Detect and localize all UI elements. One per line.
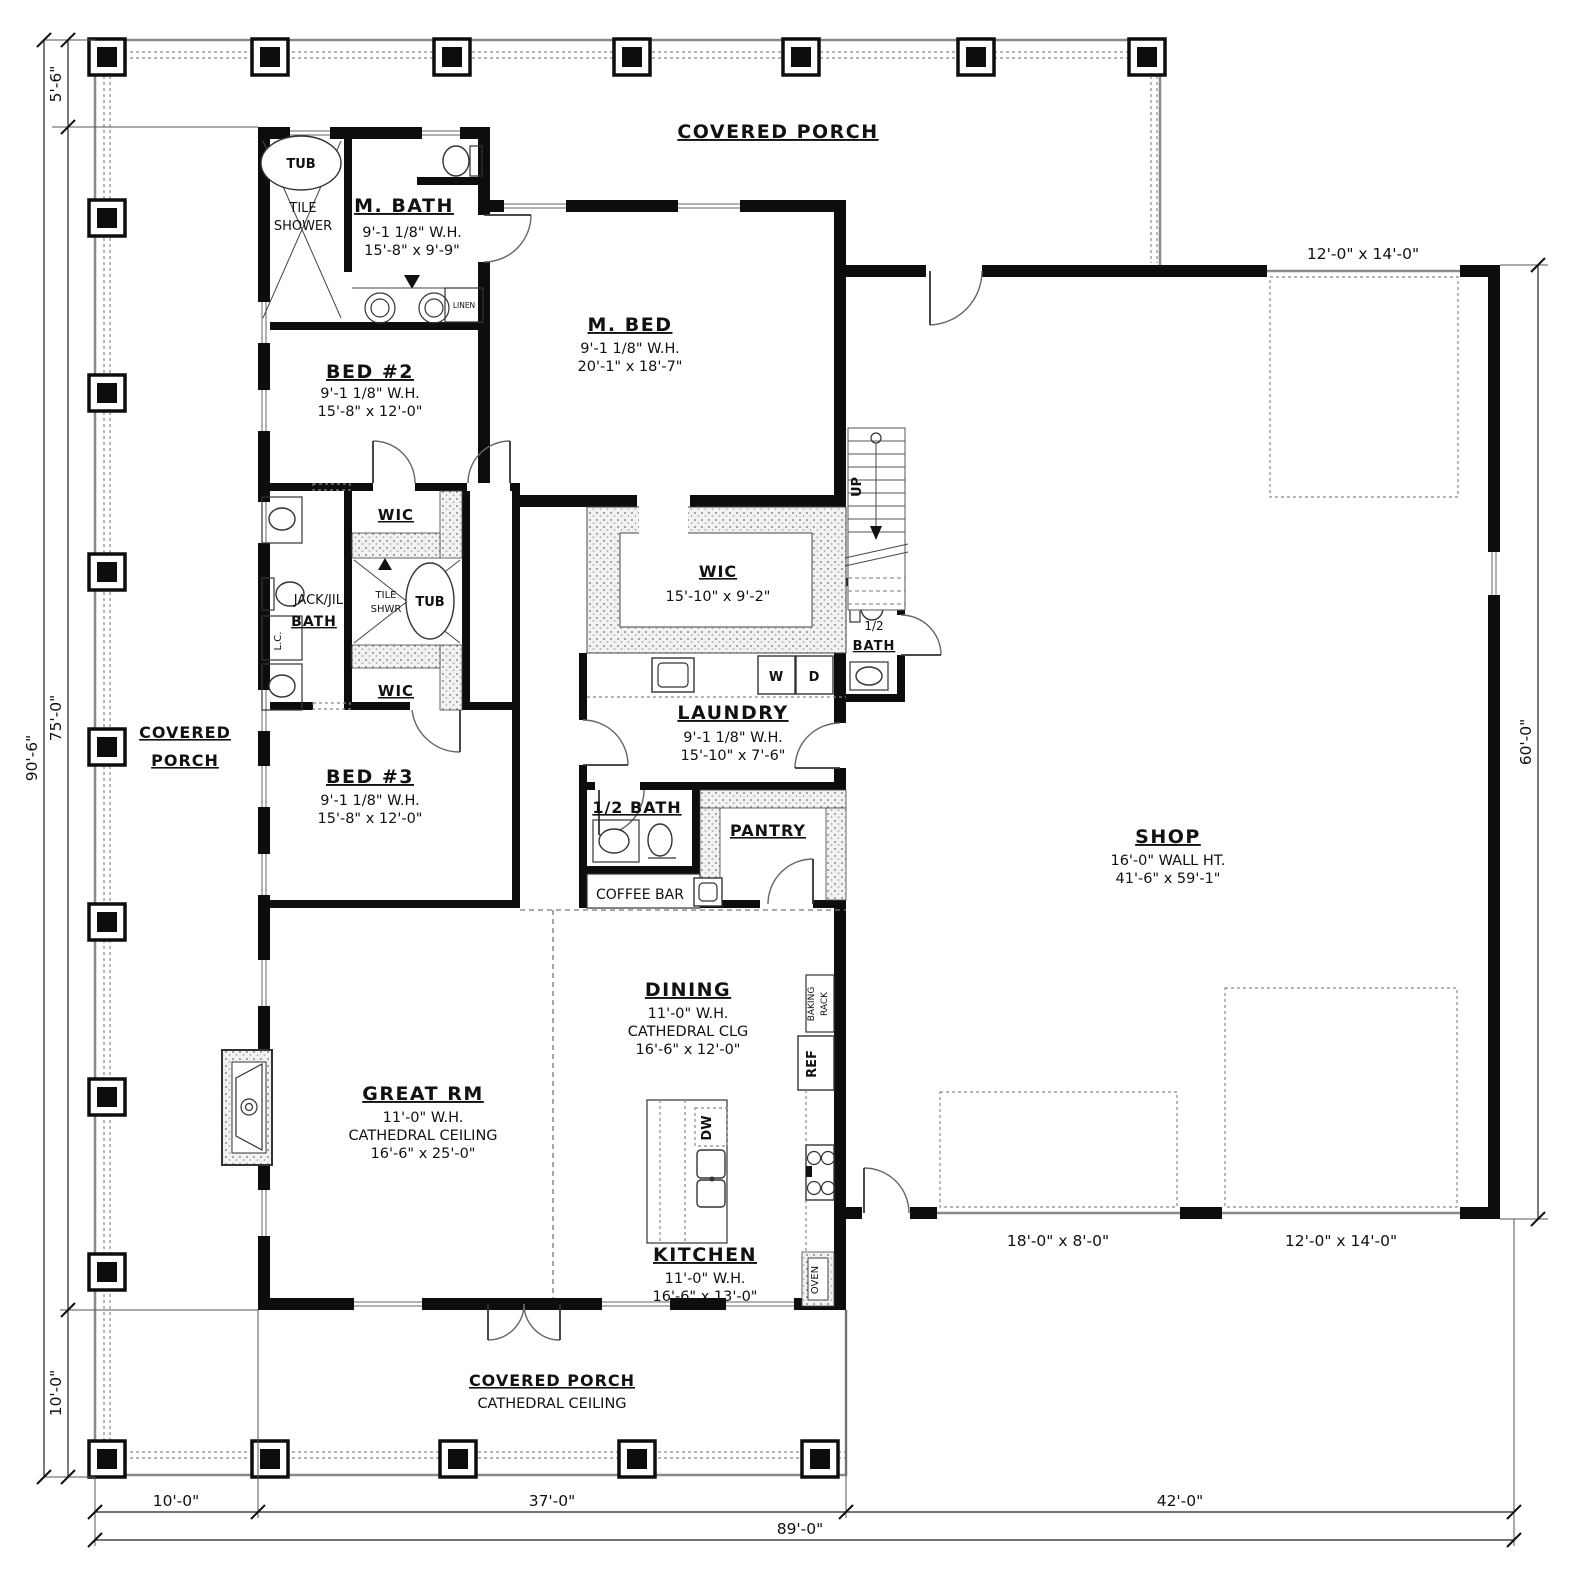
laundry-size: 15'-10" x 7'-6" — [681, 748, 786, 764]
mbed-size: 20'-1" x 18'-7" — [578, 359, 683, 375]
dining-wh: 11'-0" W.H. — [648, 1006, 729, 1022]
bed3-size: 15'-8" x 12'-0" — [318, 811, 423, 827]
washer-label: W — [769, 670, 783, 685]
window — [258, 956, 270, 1010]
window — [258, 850, 270, 899]
dim-bottom-porch: 10'-0" — [153, 1492, 200, 1510]
jackjill-line2: BATH — [291, 614, 337, 630]
oven-label: OVEN — [810, 1266, 821, 1294]
porch-column — [89, 554, 125, 590]
mbed-wh: 9'-1 1/8" W.H. — [580, 341, 679, 357]
shop-halfbath-line2: BATH — [853, 639, 896, 654]
lc-label: L.C. — [273, 632, 284, 651]
dim-oh-door-bottom-left: 18'-0" x 8'-0" — [1007, 1232, 1109, 1250]
doors — [373, 215, 982, 1340]
porch-column — [1129, 39, 1165, 75]
porch-left-label-2: PORCH — [151, 751, 219, 770]
fireplace — [222, 1050, 272, 1165]
stairs — [845, 428, 908, 610]
dim-right-shop: 60'-0" — [1517, 719, 1535, 766]
dim-left-total: 90'-6" — [23, 735, 41, 782]
porch-column — [434, 39, 470, 75]
shop-halfbath-line1: 1/2 — [864, 619, 883, 633]
porch-column — [619, 1441, 655, 1477]
mbath-title: M. BATH — [354, 195, 454, 217]
coffee-bar-label: COFFEE BAR — [596, 887, 684, 903]
greatrm-size: 16'-6" x 25'-0" — [371, 1146, 476, 1162]
jackjill-line1: JACK/JILL — [293, 593, 351, 608]
dryer-label: D — [809, 670, 820, 685]
porch-column — [89, 1441, 125, 1477]
porch-column — [802, 1441, 838, 1477]
pantry-title: PANTRY — [730, 821, 806, 840]
window — [418, 127, 464, 139]
wic-top-label: WIC — [378, 506, 414, 524]
window — [258, 1186, 270, 1240]
porch-left-label-1: COVERED — [139, 723, 231, 742]
porch-column — [89, 904, 125, 940]
bed2-wh: 9'-1 1/8" W.H. — [320, 386, 419, 402]
wic-master-size: 15'-10" x 9'-2" — [666, 589, 771, 605]
greatrm-clg: CATHEDRAL CEILING — [348, 1128, 497, 1144]
shop-wall-ht: 16'-0" WALL HT. — [1110, 853, 1225, 869]
porch-column — [89, 1079, 125, 1115]
floor-plan-canvas: COVERED PORCH COVERED PORCH COVERED PORC… — [0, 0, 1584, 1577]
tub2-label: TUB — [415, 595, 444, 610]
dining-size: 16'-6" x 12'-0" — [636, 1042, 741, 1058]
window — [258, 498, 270, 547]
shop-size: 41'-6" x 59'-1" — [1116, 871, 1221, 887]
halfbath-title: 1/2 BATH — [592, 798, 681, 817]
greatrm-title: GREAT RM — [362, 1083, 484, 1105]
labels: COVERED PORCH COVERED PORCH COVERED PORC… — [139, 121, 1225, 1412]
window — [258, 762, 270, 811]
window — [258, 386, 270, 435]
tile-shwr-line1: TILE — [375, 590, 397, 601]
shop-title: SHOP — [1135, 826, 1201, 848]
window — [500, 200, 570, 212]
porch-column — [440, 1441, 476, 1477]
kitchen-title: KITCHEN — [653, 1244, 757, 1266]
tile-shwr-line2: SHWR — [371, 604, 402, 615]
porch-column — [614, 39, 650, 75]
dw-label: DW — [700, 1115, 715, 1140]
laundry-wh: 9'-1 1/8" W.H. — [683, 730, 782, 746]
wic-bottom-label: WIC — [378, 682, 414, 700]
window — [350, 1298, 426, 1310]
porch-bottom-label: COVERED PORCH — [469, 1371, 635, 1390]
up-label: UP — [850, 477, 865, 497]
dim-oh-door-bottom-right: 12'-0" x 14'-0" — [1285, 1232, 1397, 1250]
window — [1488, 548, 1500, 599]
porch-top-label: COVERED PORCH — [677, 121, 878, 143]
bed2-size: 15'-8" x 12'-0" — [318, 404, 423, 420]
kitchen-fixtures — [798, 975, 835, 1306]
porch-column — [89, 729, 125, 765]
porch-column — [89, 1254, 125, 1290]
dim-bottom-house: 37'-0" — [529, 1492, 576, 1510]
dim-left-bottom: 10'-0" — [47, 1370, 65, 1417]
mbed-title: M. BED — [588, 314, 673, 336]
mbath-wh: 9'-1 1/8" W.H. — [362, 225, 461, 241]
porch-column — [89, 200, 125, 236]
greatrm-wh: 11'-0" W.H. — [383, 1110, 464, 1126]
ref-label: REF — [805, 1050, 820, 1078]
tile-shower-line2: SHOWER — [274, 219, 332, 234]
porch-column — [89, 375, 125, 411]
bed2-title: BED #2 — [326, 361, 414, 383]
window — [674, 200, 744, 212]
porch-bottom-sub: CATHEDRAL CEILING — [477, 1396, 626, 1412]
laundry-title: LAUNDRY — [677, 702, 788, 724]
dining-clg: CATHEDRAL CLG — [628, 1024, 749, 1040]
kitchen-size: 16'-6" x 13'-0" — [653, 1289, 758, 1305]
kitchen-island — [647, 1100, 727, 1243]
baking-rack-line1: BAKING — [807, 987, 817, 1022]
dining-title: DINING — [645, 979, 731, 1001]
floor-plan-page: COVERED PORCH COVERED PORCH COVERED PORC… — [0, 0, 1584, 1577]
dim-left-top: 5'-6" — [47, 66, 65, 103]
dim-bottom-shop: 42'-0" — [1157, 1492, 1204, 1510]
wic-master-title: WIC — [699, 562, 737, 581]
kitchen-wh: 11'-0" W.H. — [665, 1271, 746, 1287]
half-bath-fixtures — [593, 820, 676, 862]
porch-column — [252, 1441, 288, 1477]
dim-oh-door-top: 12'-0" x 14'-0" — [1307, 245, 1419, 263]
porch-column — [89, 39, 125, 75]
mbath-size: 15'-8" x 9'-9" — [364, 243, 460, 259]
porch-column — [252, 39, 288, 75]
dim-left-main: 75'-0" — [47, 695, 65, 742]
laundry-fixtures — [587, 656, 846, 697]
porch-column — [958, 39, 994, 75]
baking-rack-line2: RACK — [820, 991, 830, 1016]
tile-shower-line1: TILE — [288, 201, 316, 216]
bed3-title: BED #3 — [326, 766, 414, 788]
bed3-wh: 9'-1 1/8" W.H. — [320, 793, 419, 809]
porch-column — [783, 39, 819, 75]
tub-label: TUB — [286, 157, 315, 172]
linen-label: LINEN — [453, 301, 475, 310]
dim-bottom-total: 89'-0" — [777, 1520, 824, 1538]
